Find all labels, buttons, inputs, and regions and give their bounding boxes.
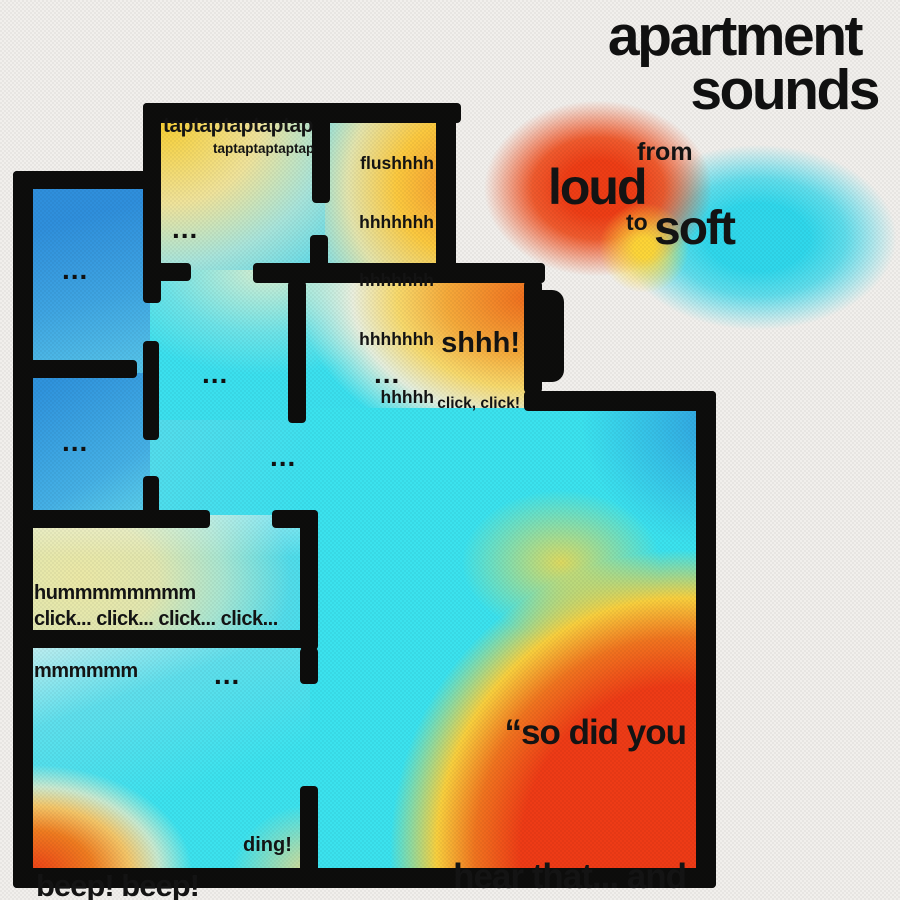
quote-line1: “so did you: [350, 709, 686, 757]
title-line-apartment: apartment: [608, 8, 861, 65]
wall-kitchen-right-lower: [300, 786, 318, 878]
legend-soft: soft: [654, 201, 734, 256]
room-zone-bedroom1: [28, 188, 153, 373]
label-hum-line1: hummmmmmmm: [34, 580, 196, 606]
dots-tap-room: ...: [172, 215, 198, 243]
wall-outer-right: [696, 391, 716, 888]
page-title: apartment sounds: [608, 8, 878, 115]
label-tap-soft: taptaptaptaptap: [213, 141, 314, 156]
wall-living-top: [524, 391, 716, 411]
label-keyboard-clicks: click... click... click... click...: [34, 608, 278, 631]
wall-bedroom1-right: [143, 103, 161, 303]
wall-kitchen-right-upper: [300, 648, 318, 684]
dots-kitchen: ...: [214, 661, 240, 689]
label-flush-line3: hhhhhhh: [330, 271, 434, 291]
label-tap-loud: taptaptaptaptap: [163, 114, 313, 138]
label-ding: ding!: [243, 834, 292, 857]
label-click-click: click, click!: [370, 395, 520, 412]
entry-door: [534, 290, 564, 382]
label-flush-line1: flushhhh: [330, 154, 434, 174]
dots-hallway-right: ...: [374, 360, 400, 388]
wall-office-right: [300, 510, 318, 650]
label-beep: beep! beep! beep! beep!: [36, 786, 199, 900]
wall-hall-vertical: [288, 281, 306, 423]
dots-hallway-left: ...: [202, 360, 228, 388]
title-line-sounds: sounds: [608, 65, 878, 115]
poster: apartment sounds from loud to soft tapta…: [0, 0, 900, 900]
label-hum: hummmmmmmm mmmmmm: [34, 528, 196, 736]
dots-bedroom1: ...: [62, 256, 88, 284]
wall-left-block-top: [13, 171, 161, 189]
wall-bathroom-right: [436, 103, 456, 283]
quote-line2: hear that... and: [350, 853, 686, 900]
wall-bedroom-divider: [13, 360, 137, 378]
legend-to: to: [626, 209, 648, 236]
room-zone-bedroom2: [28, 373, 153, 523]
wall-bedroom2-right-upper: [143, 341, 159, 440]
label-living-quote: “so did you hear that... and then he... …: [350, 613, 686, 900]
label-shhh: shhh!: [370, 328, 520, 359]
label-hum-line2: mmmmmm: [34, 658, 196, 684]
wall-tap-bathroom-divider: [312, 103, 330, 203]
legend-loud: loud: [548, 158, 646, 216]
dots-bedroom2: ...: [62, 428, 88, 456]
wall-outer-left: [13, 171, 33, 888]
label-beep-line1: beep! beep!: [36, 866, 199, 900]
wall-office-top-left: [25, 510, 210, 528]
dots-hallway-lower: ...: [270, 443, 296, 471]
label-flush-line2: hhhhhhh: [330, 213, 434, 233]
